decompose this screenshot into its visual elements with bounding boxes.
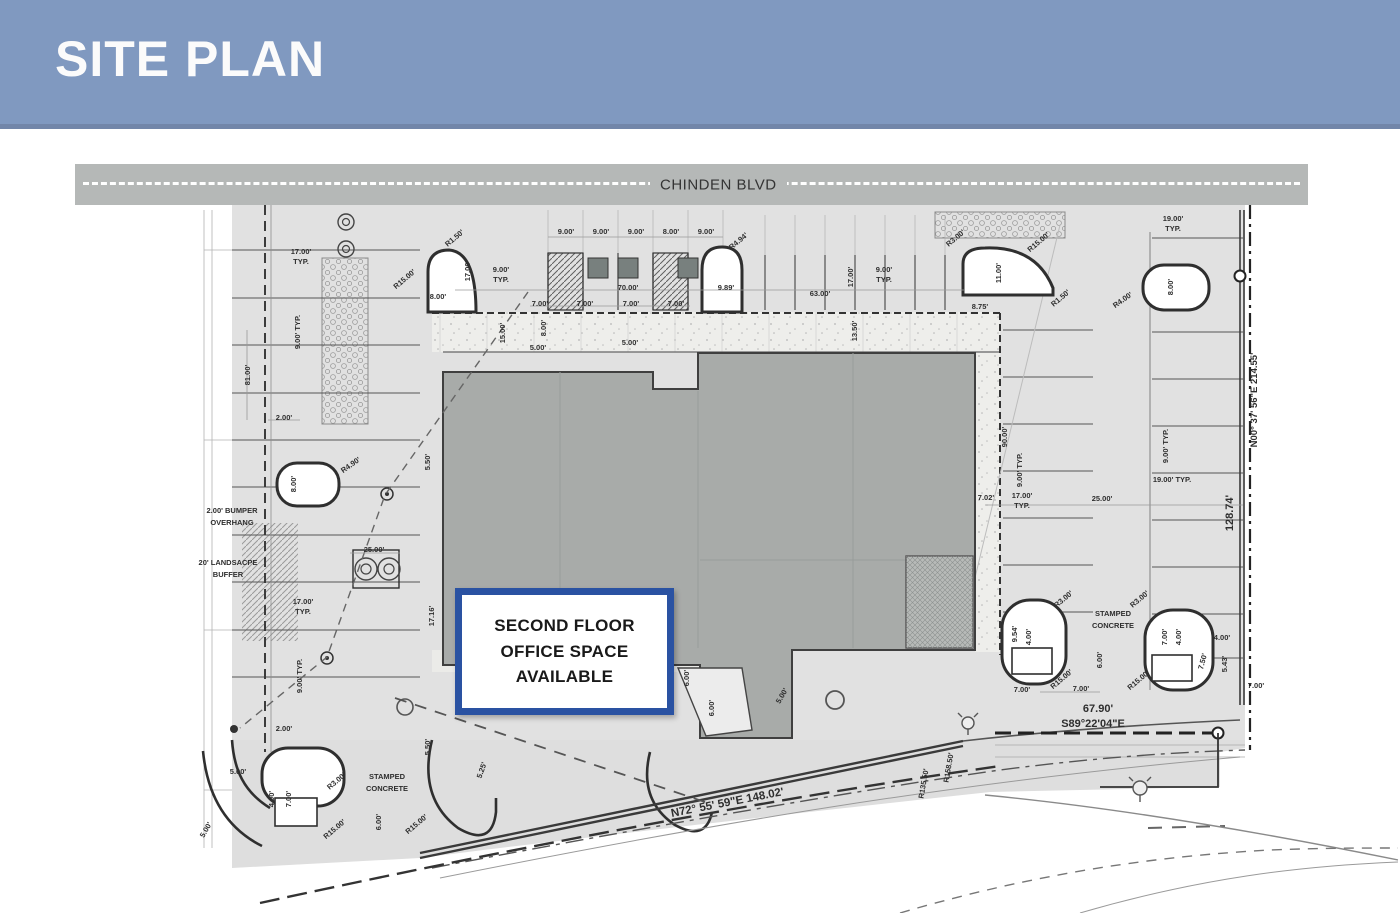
dim-label: 5.43'	[1220, 656, 1229, 673]
dim-label: 63.00'	[810, 289, 831, 298]
dim-label: 6.00'	[374, 814, 383, 831]
dim-label: 9.00'	[558, 227, 575, 236]
dim-label: 7.02'	[978, 493, 995, 502]
dim-label: 9.00'	[698, 227, 715, 236]
dim-label: 7.00'	[1160, 629, 1169, 646]
dim-label: 8.75'	[972, 302, 989, 311]
dim-label: 17.00'	[293, 597, 314, 606]
dim-label: 4.00'	[1024, 629, 1033, 646]
dim-label: 7.00'	[668, 299, 685, 308]
property-corner-node	[1235, 271, 1246, 282]
stall-symbol	[588, 258, 608, 278]
dim-label: 9.00'	[593, 227, 610, 236]
dim-label: 7.00'	[284, 791, 293, 808]
header-banner: SITE PLAN	[0, 0, 1400, 129]
page-title: SITE PLAN	[0, 0, 1400, 88]
dim-label: S89°22'04"E	[1061, 718, 1125, 730]
dim-label: 7.00'	[623, 299, 640, 308]
dim-label: TYP.	[876, 275, 892, 284]
island	[277, 463, 339, 506]
dim-label: 9.00' TYP.	[1015, 453, 1024, 487]
dim-label: 15.00'	[498, 323, 507, 344]
dim-label: 17.00'	[846, 267, 855, 288]
site-plan-drawing: 17.00'TYP.9.00' TYP.81.00'2.00'25.00'17.…	[0, 0, 1400, 913]
stall-symbol	[678, 258, 698, 278]
dim-label: STAMPED	[1095, 609, 1132, 618]
dim-label: TYP.	[295, 607, 311, 616]
dim-label: 7.00'	[532, 299, 549, 308]
dim-label: 7.00'	[1014, 685, 1031, 694]
dim-label: TYP.	[1014, 501, 1030, 510]
dim-label: 13.50'	[850, 321, 859, 342]
dim-label: CONCRETE	[1092, 621, 1134, 630]
dim-label: 5.00'	[198, 820, 214, 839]
island-detail	[275, 798, 317, 826]
utility-icon	[230, 725, 238, 733]
dim-label: 7.00'	[1248, 681, 1265, 690]
dim-label: 9.00'	[628, 227, 645, 236]
island-detail	[1012, 648, 1052, 674]
dim-label: 6.00'	[707, 700, 716, 717]
dim-label: 70.00'	[618, 283, 639, 292]
dim-label: 9.00'	[876, 265, 893, 274]
road-name-label: CHINDEN BLVD	[650, 176, 787, 193]
dim-label: 5.00'	[530, 343, 547, 352]
dim-label: 17.00'	[463, 261, 472, 282]
dim-label: 9.00' TYP.	[293, 315, 302, 349]
dim-label: 5.00'	[230, 767, 247, 776]
dim-label: OVERHANG	[210, 518, 254, 527]
dim-label: 6.00'	[682, 670, 691, 687]
dim-label: 19.00' TYP.	[1153, 475, 1191, 484]
dim-label: 9.00' TYP.	[295, 659, 304, 693]
dim-label: 128.74'	[1224, 494, 1236, 531]
island-detail	[1152, 655, 1192, 681]
stall-symbol	[618, 258, 638, 278]
dim-label: 5.50'	[423, 739, 432, 756]
dim-label: 6.00'	[1095, 652, 1104, 669]
dim-label: 11.00'	[994, 263, 1003, 283]
availability-callout: SECOND FLOOR OFFICE SPACE AVAILABLE	[455, 588, 674, 715]
dim-label: 17.16'	[427, 606, 436, 627]
dim-label: 8.00'	[663, 227, 680, 236]
dim-label: 25.00'	[364, 545, 385, 554]
dim-label: CONCRETE	[366, 784, 408, 793]
dim-label: 67.90'	[1083, 703, 1114, 715]
dim-label: 90.00'	[1000, 427, 1009, 448]
dim-label: STAMPED	[369, 772, 406, 781]
dim-label: 9.89'	[718, 283, 735, 292]
dim-label: 17.00'	[291, 247, 312, 256]
dim-label: 2.00'	[276, 724, 293, 733]
dim-label: BUFFER	[213, 570, 244, 579]
dim-label: 81.00'	[243, 365, 252, 386]
dim-label: 4.00'	[1174, 629, 1183, 646]
dim-label: 8.00'	[430, 292, 447, 301]
island	[1143, 265, 1209, 310]
dim-label: 4.00'	[267, 791, 276, 808]
dim-label: TYP.	[493, 275, 509, 284]
dim-label: TYP.	[1165, 224, 1181, 233]
dim-label: 9.54'	[1010, 626, 1019, 643]
dim-label: 19.00'	[1163, 214, 1184, 223]
dim-label: 20' LANDSACPE	[199, 558, 258, 567]
dim-label: 2.00'	[276, 413, 293, 422]
dim-label: 17.00'	[1012, 491, 1033, 500]
dim-label: 8.00'	[539, 320, 548, 337]
dim-label: N00° 37' 56"E 214.55'	[1249, 353, 1260, 448]
dim-label: 8.00'	[289, 476, 298, 493]
dim-label: 7.00'	[577, 299, 594, 308]
dim-label: 2.00' BUMPER	[207, 506, 259, 515]
chinden-blvd-road: CHINDEN BLVD	[75, 164, 1308, 205]
hydrant-icon	[1129, 777, 1151, 802]
dim-label: 9.00'	[493, 265, 510, 274]
dim-label: 5.50'	[423, 454, 432, 471]
dim-label: 8.00'	[1166, 279, 1175, 296]
site-plan-page: 17.00'TYP.9.00' TYP.81.00'2.00'25.00'17.…	[0, 0, 1400, 913]
dim-label: 25.00'	[1092, 494, 1113, 503]
dim-label: TYP.	[293, 257, 309, 266]
dim-label: 4.00'	[1214, 633, 1231, 642]
dim-label: 9.00' TYP.	[1161, 429, 1170, 463]
island	[702, 247, 742, 312]
dim-label: 5.00'	[622, 338, 639, 347]
dim-label: 7.00'	[1073, 684, 1090, 693]
